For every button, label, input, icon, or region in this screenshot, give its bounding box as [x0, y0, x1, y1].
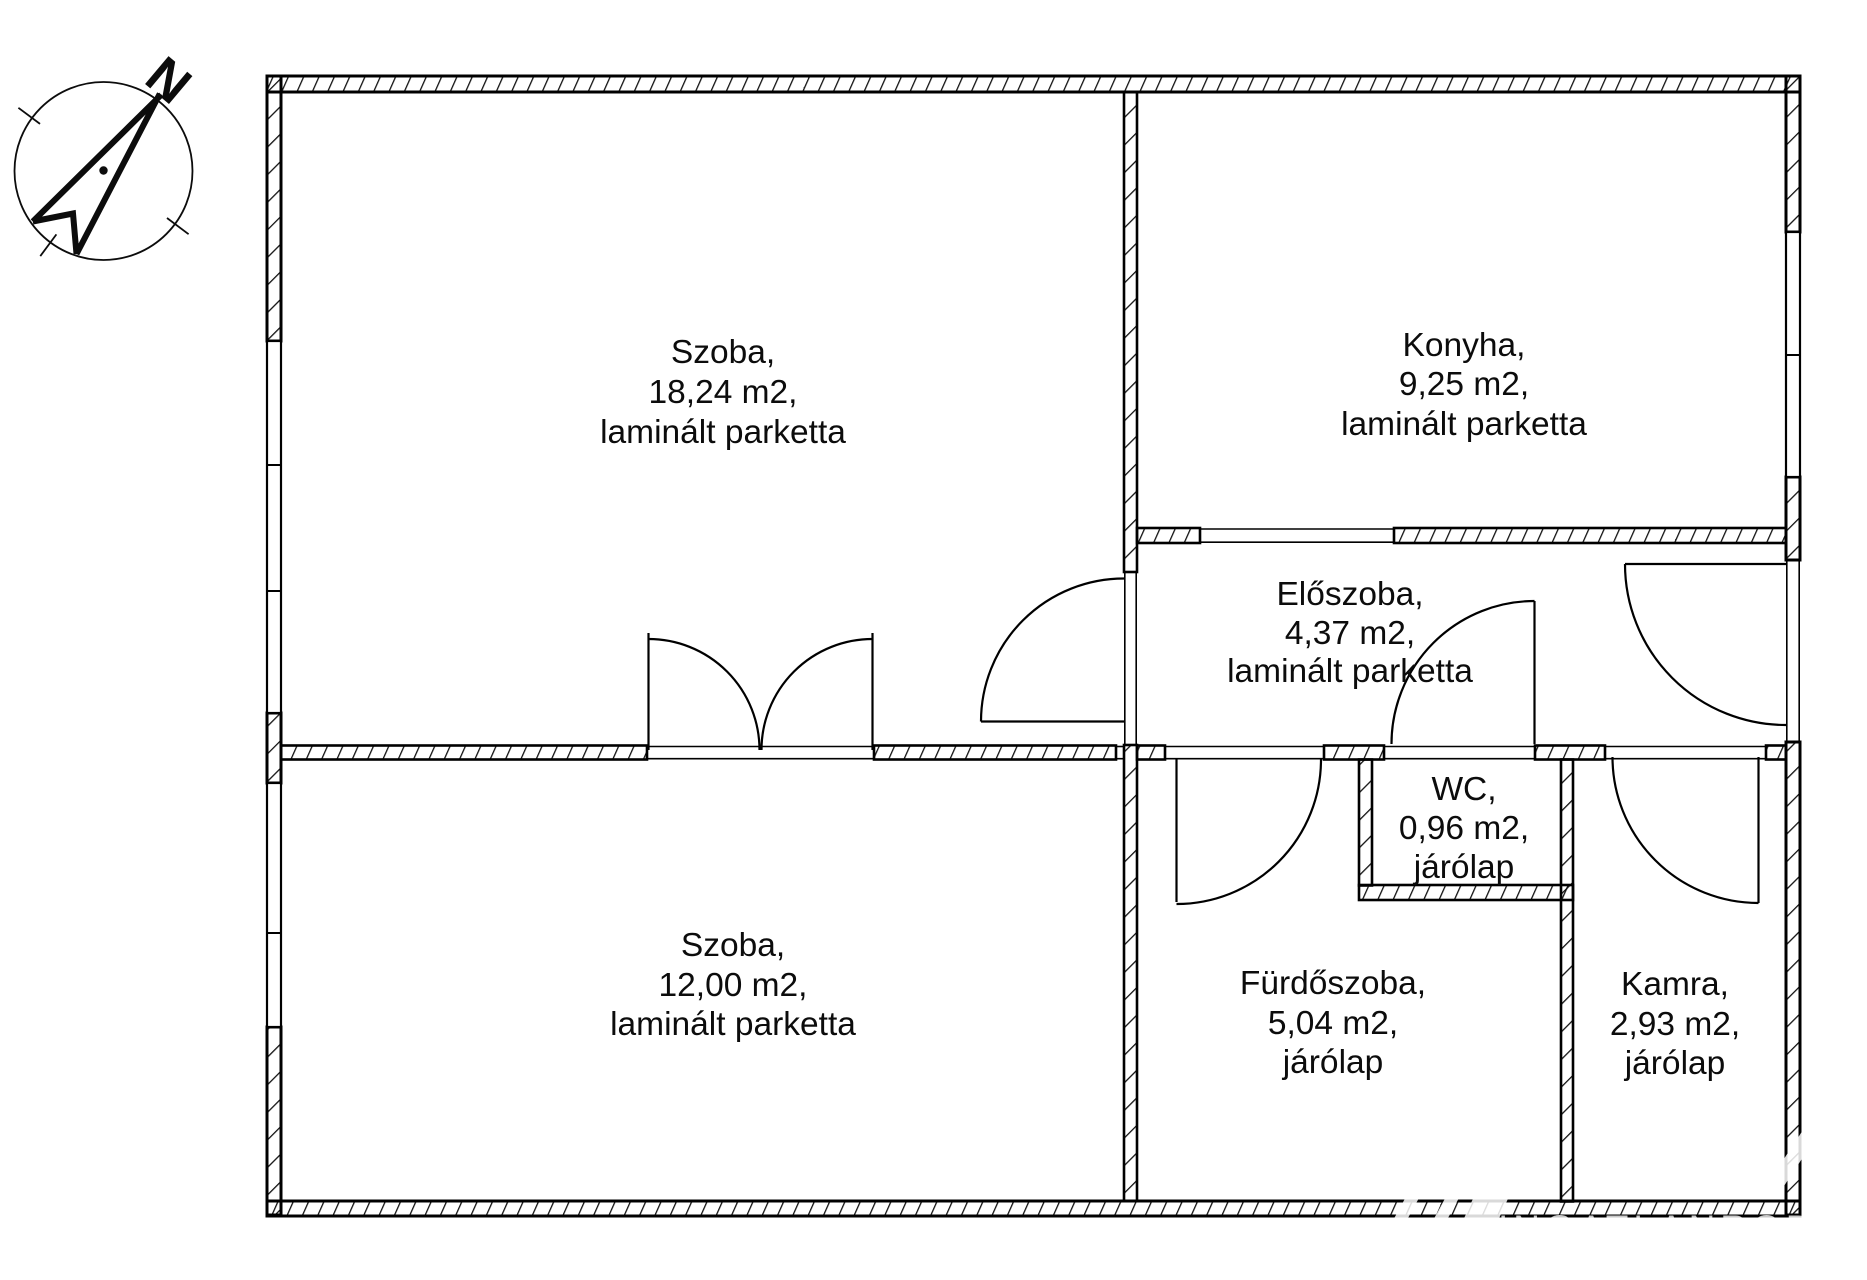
svg-text:WC,: WC, [1431, 771, 1496, 808]
svg-text:járólap: járólap [1624, 1045, 1726, 1082]
svg-text:Szoba,: Szoba, [671, 334, 775, 371]
svg-text:laminált parketta: laminált parketta [1227, 653, 1473, 690]
svg-text:Szoba,: Szoba, [681, 927, 785, 964]
svg-text:laminált parketta: laminált parketta [1341, 406, 1587, 443]
svg-text:INGATLANROB: INGATLANROB [1498, 1208, 1815, 1249]
svg-text:laminált parketta: laminált parketta [600, 414, 846, 451]
svg-text:járólap: járólap [1282, 1044, 1384, 1081]
svg-text:0,96 m2,: 0,96 m2, [1399, 810, 1529, 847]
svg-text:N: N [135, 46, 202, 116]
svg-text:5,04 m2,: 5,04 m2, [1268, 1005, 1398, 1042]
svg-text:Fürdőszoba,: Fürdőszoba, [1240, 965, 1426, 1002]
svg-text:2,93 m2,: 2,93 m2, [1610, 1006, 1740, 1043]
svg-text:Előszoba,: Előszoba, [1276, 576, 1423, 613]
svg-text:laminált parketta: laminált parketta [610, 1006, 856, 1043]
svg-text:4,37 m2,: 4,37 m2, [1285, 615, 1415, 652]
svg-text:9,25 m2,: 9,25 m2, [1399, 366, 1529, 403]
svg-text:járólap: járólap [1413, 849, 1515, 886]
svg-text:18,24 m2,: 18,24 m2, [649, 374, 798, 411]
svg-text:Konyha,: Konyha, [1403, 327, 1526, 364]
svg-text:12,00 m2,: 12,00 m2, [659, 967, 808, 1004]
svg-text:Kamra,: Kamra, [1621, 966, 1729, 1003]
